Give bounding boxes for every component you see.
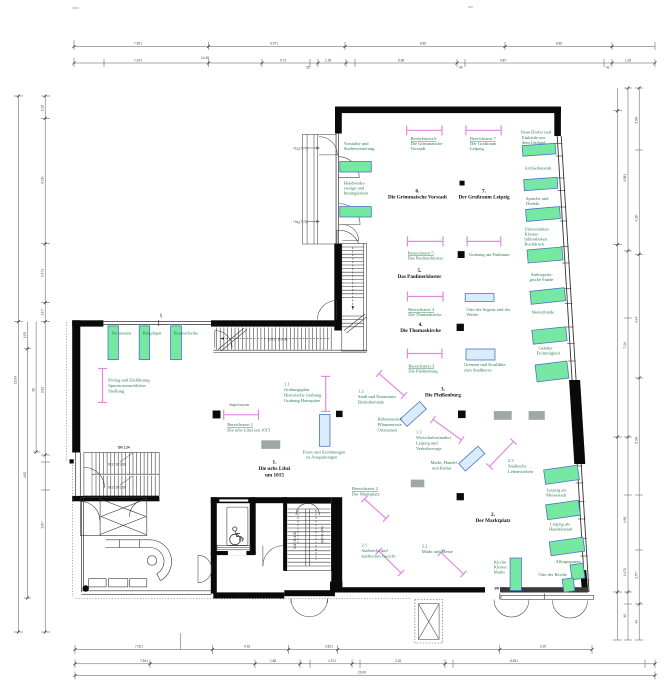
svg-text:2.2: 2.2 (422, 544, 428, 549)
svg-text:Die Thomaskirche: Die Thomaskirche (408, 312, 441, 317)
svg-text:15.04: 15.04 (14, 376, 18, 384)
svg-text:Höhenmodell: Höhenmodell (378, 417, 403, 422)
svg-text:1.: 1. (273, 460, 278, 466)
svg-text:Leipzig: Leipzig (470, 146, 484, 151)
svg-text:DN 1.24: DN 1.24 (118, 446, 130, 450)
svg-text:gische Funde: gische Funde (530, 277, 554, 282)
svg-text:40: 40 (459, 66, 463, 70)
svg-text:6.971: 6.971 (270, 42, 278, 46)
svg-text:Leipzig und: Leipzig und (416, 441, 438, 446)
svg-text:3.821: 3.821 (325, 645, 333, 649)
svg-text:Weihe: Weihe (467, 312, 478, 317)
svg-text:+0q (7.70): +0q (7.70) (293, 220, 308, 224)
svg-text:36: 36 (32, 388, 36, 392)
svg-text:Das Paulinerkloster: Das Paulinerkloster (398, 274, 443, 280)
svg-text:1.05: 1.05 (23, 332, 27, 338)
svg-text:Bereichstext 1: Bereichstext 1 (227, 422, 253, 427)
svg-text:Pflanzenreste: Pflanzenreste (378, 422, 402, 427)
svg-text:1.1: 1.1 (284, 382, 290, 387)
svg-text:1.475: 1.475 (623, 568, 627, 576)
svg-text:1.2: 1.2 (358, 389, 364, 394)
svg-text:2.26: 2.26 (395, 659, 401, 663)
svg-text:Dialekt: Dialekt (526, 201, 540, 206)
svg-text:9x17.6=1.60: 9x17.6=1.60 (320, 526, 324, 544)
svg-text:7.541: 7.541 (140, 659, 148, 663)
svg-text:3.62: 3.62 (41, 387, 45, 393)
svg-text:3.87¹: 3.87¹ (41, 521, 45, 528)
svg-text:2.471: 2.471 (41, 269, 45, 277)
svg-text:Ortsnamen: Ortsnamen (378, 428, 398, 433)
svg-text:Archäobotanik: Archäobotanik (525, 166, 552, 171)
svg-text:Vorstadt: Vorstadt (411, 146, 427, 151)
svg-text:dem Umland: dem Umland (522, 140, 546, 145)
svg-text:um 1015: um 1015 (265, 473, 284, 479)
svg-text:42: 42 (606, 66, 610, 70)
svg-text:Innungsleben: Innungsleben (344, 191, 369, 196)
svg-text:1.26: 1.26 (625, 59, 631, 63)
svg-text:Impressum: Impressum (229, 402, 249, 407)
svg-text:+1q (7.70): +1q (7.70) (293, 147, 308, 151)
svg-text:4.87: 4.87 (500, 59, 506, 63)
svg-text:5.73: 5.73 (280, 59, 286, 63)
svg-text:.40: .40 (635, 620, 639, 625)
svg-text:Neue Dörfer und: Neue Dörfer und (521, 130, 552, 135)
svg-text:14.38: 14.38 (201, 56, 209, 60)
svg-text:.Alltagsspuren: .Alltagsspuren (555, 559, 582, 564)
svg-text:3.581: 3.581 (623, 174, 627, 182)
svg-text:7.501: 7.501 (134, 42, 142, 46)
svg-text:9x17.6=1.60: 9x17.6=1.60 (108, 486, 126, 490)
svg-text:und Kultur: und Kultur (432, 466, 452, 471)
svg-text:6.16³: 6.16³ (41, 176, 45, 183)
svg-text:Baumscheibe: Baumscheibe (174, 331, 198, 336)
svg-text:1.17⁵: 1.17⁵ (41, 308, 45, 316)
svg-text:Die urbs Libzi: Die urbs Libzi (259, 466, 291, 472)
svg-text:2.3: 2.3 (508, 458, 514, 463)
svg-text:3.20: 3.20 (540, 645, 546, 649)
svg-text:Grabung Hainspitze: Grabung Hainspitze (284, 398, 320, 403)
svg-text:Grenzen und Konflikte: Grenzen und Konflikte (464, 362, 506, 367)
svg-text:7.241: 7.241 (134, 59, 142, 63)
svg-text:4.28¹: 4.28¹ (635, 214, 639, 221)
svg-text:Bronzezeit: Bronzezeit (112, 331, 132, 336)
svg-text:6.98¹: 6.98¹ (635, 436, 639, 443)
svg-text:Skelettfunde: Skelettfunde (532, 310, 555, 315)
svg-text:Wirtschaftsstandort: Wirtschaftsstandort (416, 435, 452, 440)
svg-text:Der Marktplatz: Der Marktplatz (352, 492, 380, 497)
svg-text:.40: .40 (623, 614, 627, 619)
svg-text:Lebenswelten: Lebenswelten (508, 469, 534, 474)
svg-text:8.451: 8.451 (510, 659, 518, 663)
svg-text:Spuren menschlicher: Spuren menschlicher (108, 383, 146, 388)
svg-text:Grabungsplan: Grabungsplan (284, 387, 310, 392)
svg-text:7.001: 7.001 (135, 645, 143, 649)
svg-text:4.62: 4.62 (23, 472, 27, 478)
svg-text:Die Thomaskirche: Die Thomaskirche (400, 328, 441, 334)
svg-text:Siedlung: Siedlung (108, 389, 125, 394)
svg-text:Das Paulinerkloster: Das Paulinerkloster (408, 256, 444, 261)
svg-text:4.96: 4.96 (623, 517, 627, 523)
svg-text:Grabung am Paulinum: Grabung am Paulinum (469, 252, 510, 257)
svg-text:35: 35 (306, 66, 310, 70)
svg-text:Markt und Messe: Markt und Messe (422, 549, 454, 554)
svg-text:29.06: 29.06 (358, 671, 366, 675)
svg-text:1.3: 1.3 (416, 430, 422, 435)
svg-text:zu Ausgrabungen: zu Ausgrabungen (306, 455, 338, 460)
svg-text:Frömmigkeit: Frömmigkeit (537, 351, 561, 356)
svg-text:Stadtrecht und: Stadtrecht und (362, 548, 389, 553)
svg-text:3.58¹: 3.58¹ (635, 116, 639, 123)
svg-text:Markt: Markt (494, 570, 506, 575)
svg-text:Messestadt: Messestadt (546, 493, 567, 498)
svg-text:8.82: 8.82 (420, 42, 426, 46)
svg-text:Bereichstext 2: Bereichstext 2 (352, 486, 378, 491)
svg-text:Die Pleißenburg: Die Pleißenburg (408, 368, 438, 373)
svg-text:17x17.6=3.00: 17x17.6=3.00 (268, 338, 288, 342)
svg-text:städtisches Gericht: städtisches Gericht (362, 554, 397, 559)
svg-text:Die Pleißenburg: Die Pleißenburg (425, 393, 461, 399)
svg-text:Historische Grabung: Historische Grabung (284, 393, 322, 398)
svg-text:1.971: 1.971 (328, 659, 336, 663)
svg-text:Städtische: Städtische (508, 464, 527, 469)
svg-text:zum Stadtherrn: zum Stadtherrn (464, 368, 492, 373)
svg-text:Die Grimmaische Vorstadt: Die Grimmaische Vorstadt (388, 195, 447, 201)
svg-text:Der Großraum Leipzig: Der Großraum Leipzig (458, 195, 510, 201)
svg-text:Handelsstadt: Handelsstadt (549, 527, 573, 532)
svg-text:Der Marktplatz: Der Marktplatz (476, 518, 512, 524)
svg-text:4.94: 4.94 (635, 317, 639, 323)
svg-text:Stadt und Naturraum: Stadt und Naturraum (358, 394, 396, 399)
svg-text:BN 1.54: BN 1.54 (495, 587, 507, 591)
svg-text:9x17.6=1.60: 9x17.6=1.60 (293, 531, 297, 549)
svg-text:1.57⁵: 1.57⁵ (635, 571, 639, 579)
svg-text:8.82: 8.82 (556, 42, 562, 46)
svg-text:2.1: 2.1 (362, 543, 368, 548)
svg-text:Prolog und Einführung: Prolog und Einführung (108, 378, 150, 383)
svg-text:Stadterweiterung: Stadterweiterung (344, 146, 375, 151)
svg-text:1.35: 1.35 (325, 59, 331, 63)
svg-text:7.24¹: 7.24¹ (623, 341, 627, 348)
svg-text:5.98: 5.98 (398, 59, 404, 63)
svg-text:1.06: 1.06 (41, 105, 45, 111)
svg-text:Buchdruck: Buchdruck (525, 242, 545, 247)
svg-text:Die urbs Libzi um 1015: Die urbs Libzi um 1015 (227, 428, 271, 433)
svg-text:Bodenbefunde: Bodenbefunde (358, 400, 384, 405)
svg-text:Ringdepot: Ringdepot (143, 331, 162, 336)
svg-text:4.16: 4.16 (244, 645, 250, 649)
svg-text:Verkehrswege: Verkehrswege (416, 446, 442, 451)
svg-text:Otto der Reiche: Otto der Reiche (539, 572, 568, 577)
svg-text:1.85: 1.85 (270, 659, 276, 663)
svg-text:9x17.6=1.60: 9x17.6=1.60 (108, 463, 126, 467)
